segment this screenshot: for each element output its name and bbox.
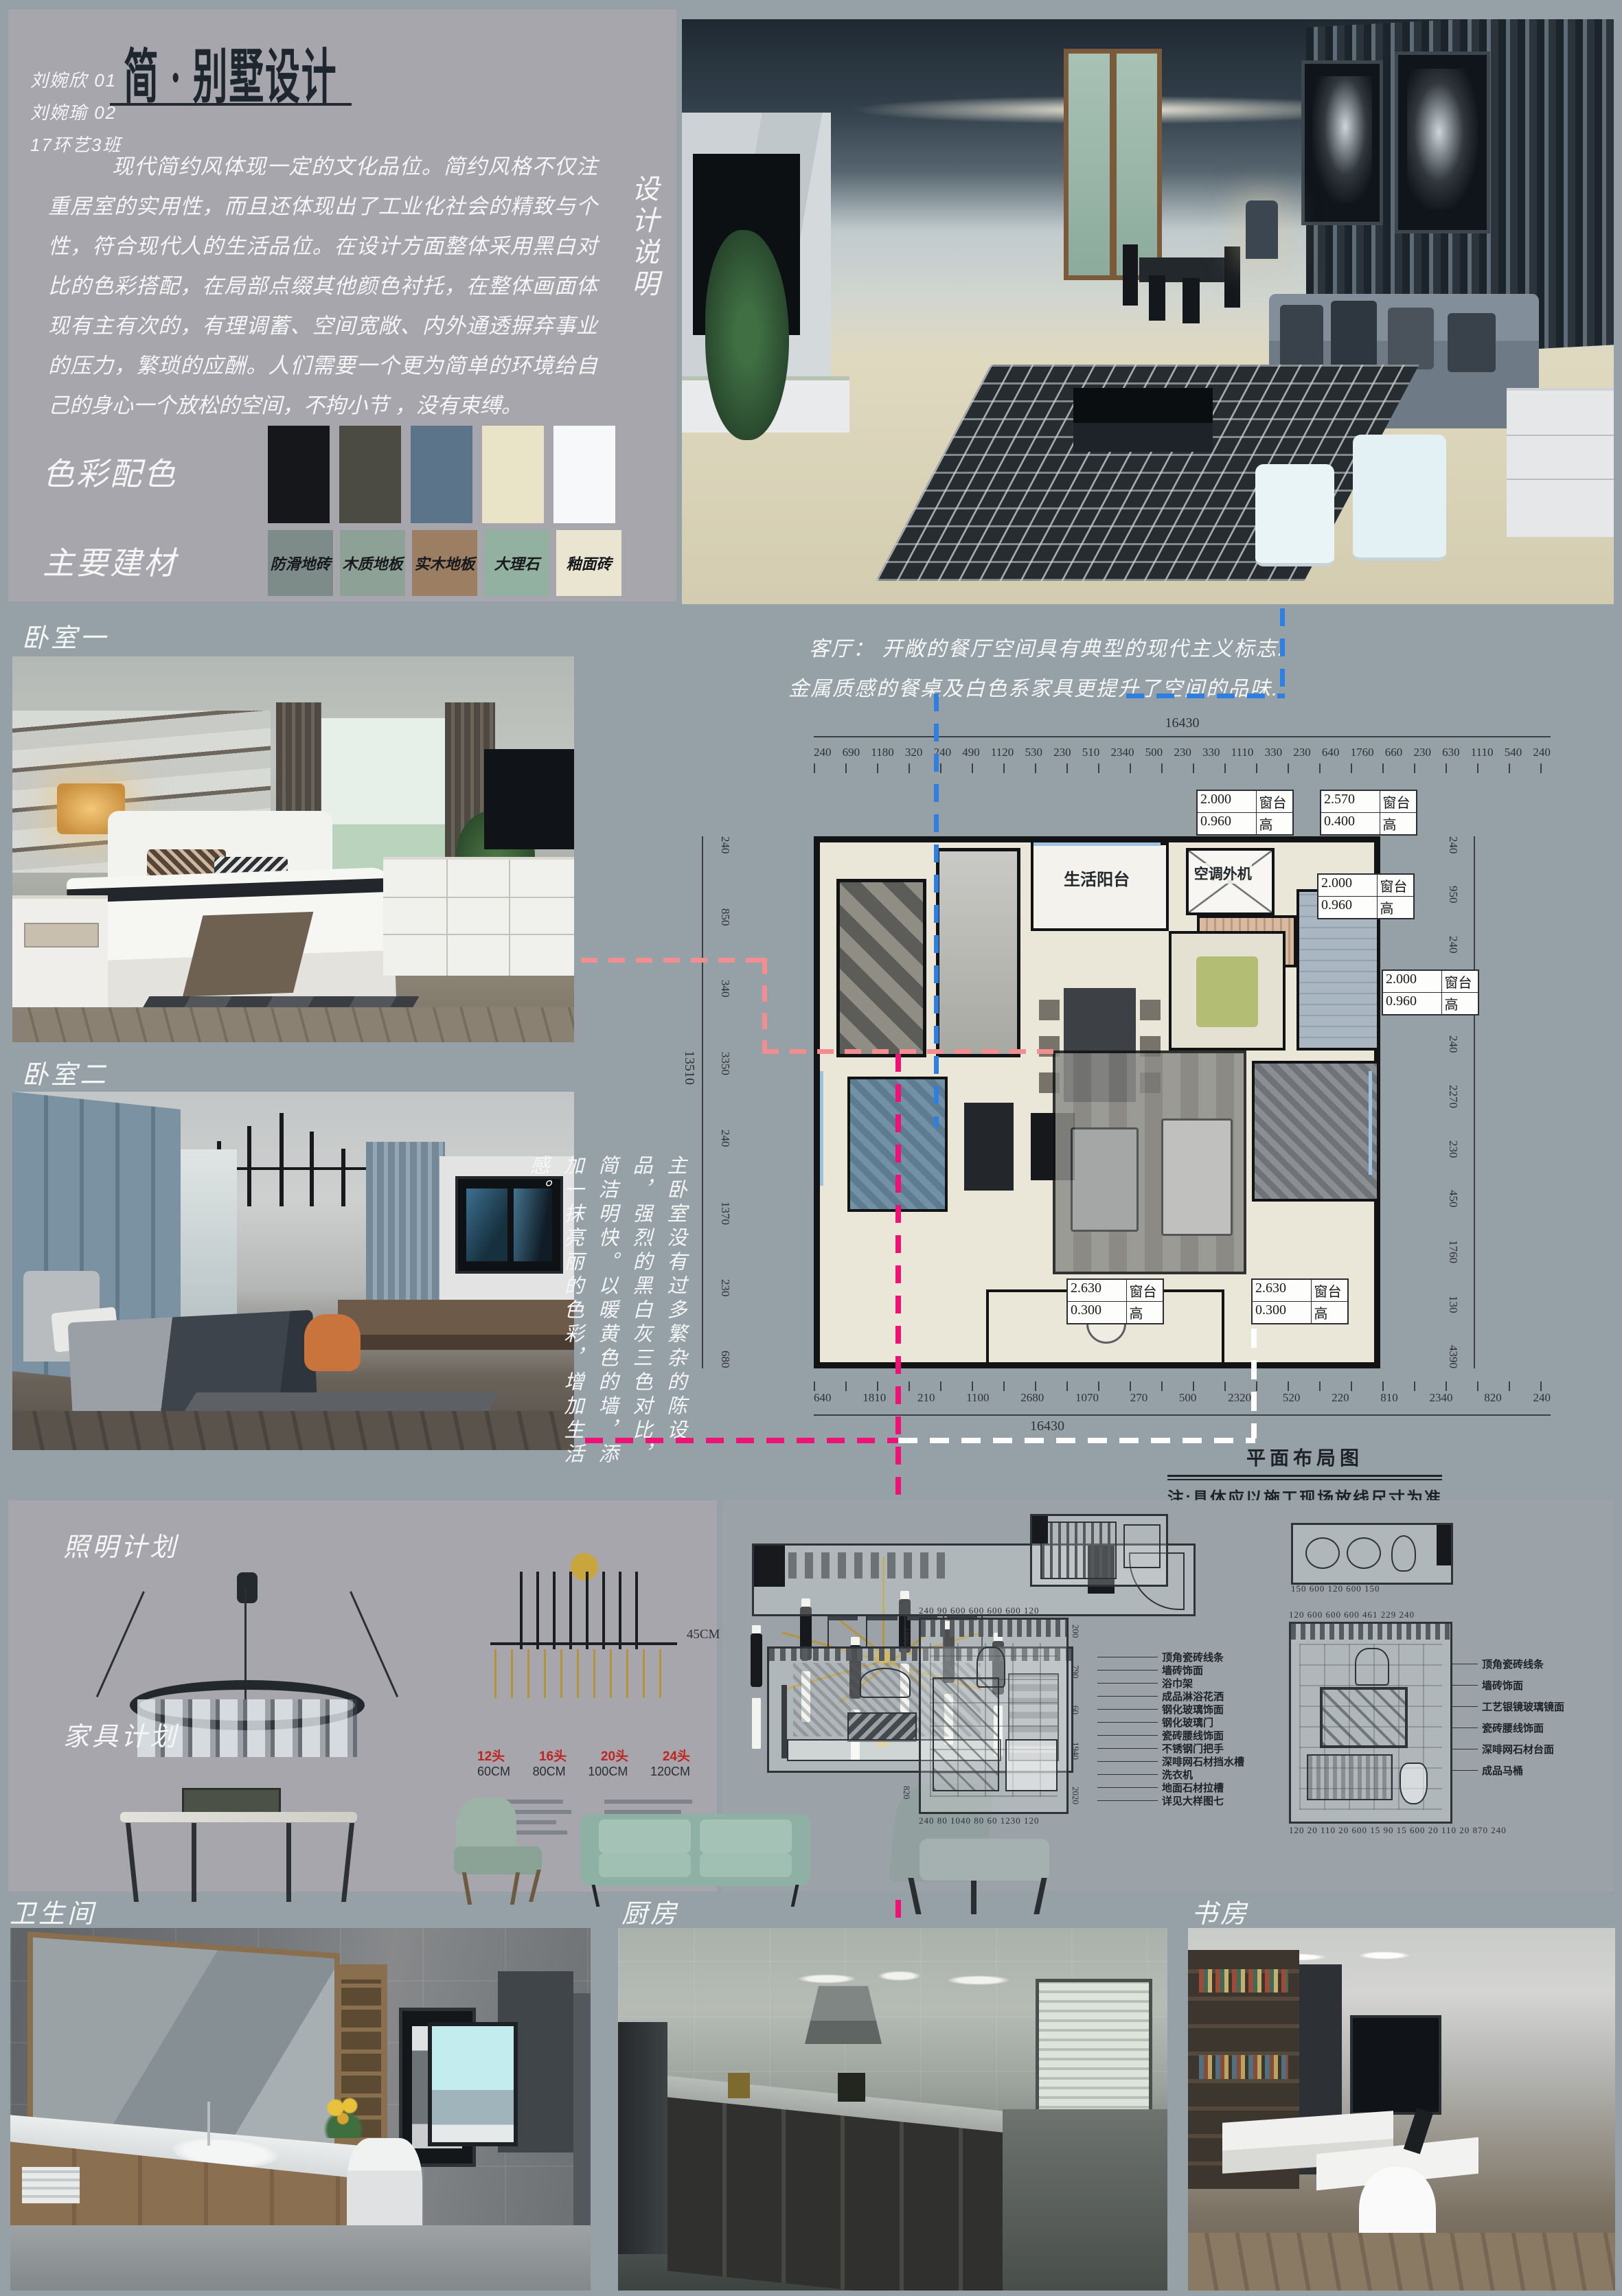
callout-text: 成品马桶 (1482, 1763, 1523, 1778)
furniture-plan-label: 家具计划 (63, 1715, 179, 1753)
material-swatch: 大理石 (484, 530, 549, 596)
life-balcony-label: 生活阳台 (1064, 866, 1130, 890)
bedroom1-label: 卧室一 (22, 617, 108, 654)
bedroom2-label: 卧室二 (22, 1053, 108, 1091)
sill-width: 2.000 (1318, 875, 1378, 897)
dim-value: 680 (718, 1351, 732, 1368)
callout-text: 顶角瓷砖线条 (1482, 1657, 1544, 1671)
drawer-line (1507, 435, 1614, 436)
dark-corner (573, 1993, 591, 2247)
tv-console (338, 1300, 574, 1350)
dining-chair (1224, 246, 1240, 308)
presentation-board: 刘婉欣 01刘婉瑜 0217环艺3班 简 · 别墅设计 现代简约风体现一定的文化… (0, 0, 1622, 2296)
plan-total-width-bottom: 16430 (814, 1419, 1281, 1434)
caption-rule (1167, 1475, 1442, 1477)
size-cm: 120CM (650, 1765, 690, 1779)
callout-text: 深啡网石材挡水槽 (1162, 1754, 1244, 1769)
elevation-b-right-dims: 2007906019402020 (1070, 1625, 1081, 1804)
city-window (428, 2022, 517, 2146)
title-underline (110, 103, 352, 106)
window-strip (1369, 1071, 1372, 1175)
dim-value: 450 (1446, 1190, 1460, 1208)
sill-label: 窗台 (1312, 1280, 1347, 1302)
towel-stack (22, 2167, 80, 2203)
window-callout: 2.000窗台 0.960高 (1196, 790, 1294, 836)
dim-value: 2020 (1070, 1787, 1081, 1804)
dim-value: 230 (1053, 746, 1071, 759)
material-name: 大理石 (494, 552, 539, 574)
dim-value: 2340 (1110, 746, 1134, 759)
leader-line (1450, 1706, 1478, 1707)
elevation-b-left-dims: 1890820 (901, 1627, 912, 1799)
table-lamp (1246, 200, 1278, 259)
callout-text: 不锈钢门把手 (1162, 1741, 1224, 1756)
head-count: 12头 (477, 1746, 505, 1765)
window-callout: 2.630窗台 0.300高 (1251, 1278, 1349, 1324)
small-bedroom (1169, 931, 1285, 1051)
dim-value: 1180 (871, 746, 893, 759)
callout-text: 工艺银镜玻璃镜面 (1482, 1699, 1564, 1714)
canopy (237, 1572, 258, 1603)
drawer-line (383, 934, 574, 935)
green-sofa (580, 1814, 810, 1907)
wall-block (754, 1546, 785, 1587)
chair-seat (919, 1839, 1049, 1881)
dim-value: 4390 (1446, 1345, 1460, 1368)
wood-floor (1188, 2233, 1615, 2291)
back-cushion (700, 1819, 792, 1853)
material-callout: 成品淋浴花洒 (1097, 1690, 1244, 1703)
tv-art (466, 1189, 507, 1262)
television (484, 749, 574, 849)
materials-label: 主要建材 (43, 538, 177, 584)
material-swatch: 木质地板 (340, 530, 405, 596)
chair-plan (1039, 1000, 1059, 1020)
plan-left-dims: 24085034033502401370230680 (711, 836, 739, 1368)
dim-value: 2320 (1228, 1391, 1251, 1405)
head-count: 20头 (601, 1746, 628, 1765)
white-ottoman (1255, 464, 1334, 567)
flower-vase (323, 2095, 364, 2138)
leader-line (1097, 1670, 1158, 1671)
plan-bottom-dims: 6401810210110026801070270500232052022081… (814, 1391, 1551, 1405)
door-mullion (1110, 54, 1117, 276)
connector-blue-h (1126, 693, 1285, 698)
dim-value: 2680 (1020, 1391, 1044, 1405)
dim-value: 230 (1174, 746, 1191, 759)
design-notes-vertical-label: 设计说明 (621, 174, 665, 301)
leader-line (1450, 1664, 1478, 1664)
height-label: 高 (1312, 1302, 1347, 1323)
connector-blue-v1 (1280, 608, 1285, 698)
dim-value: 240 (1446, 936, 1460, 954)
dim-value: 530 (1025, 746, 1042, 759)
caption-rule (1167, 1479, 1442, 1480)
sill-width: 2.630 (1253, 1280, 1312, 1302)
material-swatches: 防滑地砖 木质地板 实木地板 大理石 釉面砖 (268, 530, 621, 596)
callout-text: 钢化玻璃饰面 (1162, 1702, 1224, 1717)
dim-value: 240 (1533, 746, 1551, 759)
elevation-b-top-dims: 240 90 600 600 600 600 120 (919, 1605, 1040, 1616)
callout-text: 浴巾架 (1162, 1676, 1193, 1690)
elevation-c-labels: 顶角瓷砖线条 墙砖饰面 工艺银镜玻璃镜面 瓷砖腰线饰面 深啡网石材台面 成品马桶 (1450, 1653, 1564, 1781)
spec-line (604, 1800, 692, 1804)
material-callout: 不锈钢门把手 (1097, 1742, 1244, 1755)
material-swatch: 防滑地砖 (268, 530, 333, 596)
size-cm: 100CM (588, 1765, 628, 1779)
wood-floor (12, 1007, 574, 1042)
vanity-mirror (27, 1931, 340, 2152)
callout-cap (867, 1616, 898, 1620)
dim-chain-line (814, 736, 1551, 737)
gold-drops (494, 1649, 673, 1697)
leader-line (1450, 1685, 1478, 1686)
dim-value: 1940 (1070, 1742, 1081, 1760)
bedroom2-photo (12, 1092, 574, 1450)
wall-block (1032, 1516, 1048, 1543)
design-description: 现代简约风体现一定的文化品位。简约风格不仅注重居室的实用性，而且还体现出了工业化… (48, 147, 597, 426)
dim-value: 330 (1265, 746, 1283, 759)
leader-line (1097, 1696, 1158, 1697)
sill-width: 2.000 (1383, 971, 1442, 993)
color-swatch (482, 426, 544, 523)
leader-line (1097, 1722, 1158, 1723)
study-label: 书房 (1191, 1892, 1249, 1930)
window-callout: 2.630窗台 0.300高 (1066, 1278, 1164, 1324)
glass-door-symbol (933, 1677, 999, 1791)
sofa-plan (964, 1103, 1014, 1191)
connector-salmon-h2 (762, 1049, 1064, 1054)
dim-value: 230 (1293, 746, 1311, 759)
leader-line (1097, 1800, 1158, 1801)
bedroom1-photo (12, 656, 574, 1042)
leader-line (1097, 1761, 1158, 1762)
sofa-pillow (1448, 313, 1496, 372)
dim-value: 240 (814, 746, 832, 759)
elevation-c-bottom-dims: 120 20 110 20 600 15 90 15 600 20 110 20… (1289, 1825, 1507, 1836)
color-swatch (553, 426, 615, 523)
chandelier-symbol (1355, 1648, 1389, 1686)
faucet (207, 2102, 210, 2145)
material-callout: 墙砖饰面 (1097, 1664, 1244, 1677)
elevation-b-plan (1030, 1514, 1168, 1587)
callout-text: 墙砖饰面 (1482, 1678, 1523, 1692)
callout-text: 成品淋浴花洒 (1162, 1689, 1224, 1703)
window-callout: 2.000窗台 0.960高 (1382, 969, 1479, 1015)
board-title: 简 · 别墅设计 (124, 29, 337, 115)
rod-cluster (520, 1572, 648, 1649)
tile-floor (10, 2225, 591, 2291)
dim-value: 1120 (991, 746, 1014, 759)
kitchen-photo (618, 1928, 1167, 2291)
dining-chair (1123, 244, 1139, 306)
dim-value: 230 (1446, 1140, 1460, 1158)
sill-height: 0.960 (1318, 897, 1378, 918)
material-callout: 墙砖饰面 (1450, 1675, 1564, 1696)
book-row (1199, 2055, 1288, 2079)
dim-value: 1890 (901, 1627, 912, 1645)
sill-label: 窗台 (1380, 791, 1416, 813)
color-swatches (268, 426, 615, 523)
dim-value: 240 (718, 1129, 732, 1147)
connector-salmon-v (762, 958, 767, 1054)
dim-value: 1760 (1446, 1240, 1460, 1263)
material-name: 实木地板 (414, 552, 475, 574)
head-count: 24头 (663, 1746, 690, 1765)
material-name: 防滑地砖 (270, 552, 330, 574)
marble-top (120, 1812, 357, 1822)
callout-text: 钢化玻璃门 (1162, 1715, 1213, 1730)
sofa-pillow (1331, 301, 1377, 368)
connector-white-v (1251, 1329, 1257, 1438)
leader-line (1097, 1748, 1158, 1749)
dim-value: 340 (718, 980, 732, 998)
dim-value: 540 (1505, 746, 1522, 759)
dim-value: 640 (1322, 746, 1340, 759)
drawer (24, 923, 100, 947)
leader-line (1097, 1657, 1158, 1657)
leader-line (1450, 1749, 1478, 1749)
sofa-pillow (1388, 308, 1434, 369)
seat-cushion (599, 1853, 691, 1877)
plan-caption-block: 平面布局图 注:具体应以施工现场放线尺寸为准 (1161, 1443, 1449, 1508)
chair-plan (1140, 1000, 1160, 1020)
callout-text: 洗衣机 (1162, 1767, 1193, 1782)
washer-symbol (1005, 1739, 1058, 1792)
material-callout: 钢化玻璃饰面 (1097, 1703, 1244, 1716)
leader-line (1450, 1770, 1478, 1771)
dim-value: 510 (1082, 746, 1100, 759)
bathroom-photo (10, 1928, 591, 2291)
back-cushion (599, 1819, 691, 1853)
chandelier-rod (341, 1149, 345, 1206)
connector-blue-v2 (934, 693, 939, 1127)
sill-label: 窗台 (1442, 971, 1478, 993)
table-leg (286, 1823, 291, 1902)
dim-value: 1810 (863, 1391, 886, 1405)
dim-value: 2270 (1446, 1085, 1460, 1108)
table-leg (126, 1823, 139, 1902)
stick-chandelier: 45CM 12头16头20头24头 60CM80CM100CM120CM (477, 1553, 690, 1738)
dim-value: 790 (1070, 1665, 1081, 1679)
drawer-line (446, 860, 448, 976)
living-room-photo (682, 19, 1614, 604)
dim-value: 490 (962, 746, 980, 759)
foyer-checker-floor (836, 879, 926, 1057)
material-callout: 详见大样图七 (1097, 1794, 1244, 1807)
dim-value: 230 (718, 1279, 732, 1297)
book-row (1199, 1969, 1288, 1993)
dim-value: 3350 (718, 1052, 732, 1075)
size-cm: 60CM (477, 1765, 510, 1779)
head-count: 16头 (539, 1746, 567, 1765)
window-callout: 2.570窗台 0.400高 (1320, 790, 1417, 836)
drawer-line (383, 897, 574, 898)
chandelier-rod (247, 1126, 251, 1206)
dim-value: 2340 (1430, 1391, 1453, 1405)
leader-line (1097, 1774, 1158, 1775)
chair-leg (510, 1872, 520, 1905)
dim-value: 630 (1442, 746, 1460, 759)
material-callout: 地面石材拉槽 (1097, 1781, 1244, 1794)
material-callout: 顶角瓷砖线条 (1450, 1653, 1564, 1675)
dim-value: 810 (1380, 1391, 1398, 1405)
material-callout: 瓷砖腰线饰面 (1450, 1717, 1564, 1738)
dim-value: 850 (718, 908, 732, 926)
dim-value: 270 (1130, 1391, 1148, 1405)
sill-label: 窗台 (1127, 1280, 1163, 1302)
dim-value: 240 (1533, 1391, 1551, 1405)
plan-right-dims: 240950240350240227023045017601304390 (1439, 836, 1467, 1368)
dim-value: 320 (905, 746, 923, 759)
bed-runner (183, 911, 314, 996)
coffee-table (1073, 388, 1213, 452)
dim-value: 1110 (1471, 746, 1494, 759)
bed (66, 867, 396, 1018)
sill-label: 窗台 (1257, 791, 1292, 813)
height-label: 高 (1380, 813, 1416, 834)
sofa-leg (592, 1885, 600, 1907)
material-callout: 顶角瓷砖线条 (1097, 1651, 1244, 1664)
sill-width: 2.570 (1321, 791, 1380, 813)
seat-cushion (700, 1853, 792, 1877)
ac-unit-label: 空调外机 (1194, 863, 1252, 884)
drawer-line (509, 860, 510, 976)
window-strip (1033, 842, 1161, 846)
bathroom-label: 卫生间 (10, 1892, 96, 1930)
palette-label: 色彩配色 (43, 449, 177, 494)
table-leg (341, 1823, 354, 1902)
dining-chair (1149, 275, 1166, 321)
callout-text: 墙砖饰面 (1162, 1663, 1203, 1677)
dim-value: 820 (901, 1786, 912, 1800)
dim-value: 330 (1202, 746, 1220, 759)
callout-cap (827, 1616, 858, 1620)
ceiling-band (921, 1620, 1066, 1637)
material-name: 釉面砖 (566, 552, 611, 574)
sill-height: 0.960 (1383, 993, 1442, 1014)
plan-caption: 平面布局图 (1161, 1443, 1449, 1471)
dim-value: 230 (1413, 746, 1431, 759)
dining-chair (1183, 278, 1200, 323)
dim-value: 200 (1070, 1625, 1081, 1638)
callout-text: 瓷砖腰线饰面 (1482, 1721, 1544, 1735)
chair-leg (908, 1878, 921, 1914)
orange-chair (304, 1314, 361, 1372)
living-caption-line1: 客厅： 开敞的餐厅空间具有典型的现代主义标志. (809, 632, 1285, 662)
feather-art (1407, 69, 1478, 209)
cabinet-symbol (1123, 1524, 1161, 1568)
ceiling-band (1291, 1624, 1450, 1640)
plant-symbol (781, 1685, 787, 1758)
leader-line (1097, 1709, 1158, 1710)
sofa-leg (790, 1885, 799, 1907)
material-name: 木质地板 (342, 552, 402, 574)
window-strip (820, 1071, 823, 1186)
material-callout: 深啡网石材挡水槽 (1097, 1755, 1244, 1768)
dim-value: 240 (718, 836, 732, 854)
dim-value: 690 (843, 746, 860, 759)
chair-leg (462, 1872, 472, 1905)
mirror-symbol (1320, 1687, 1408, 1748)
kitchen-counter (936, 848, 1020, 1057)
chandelier-rod (279, 1113, 284, 1206)
cross-bar (490, 1642, 678, 1645)
connector-salmon-h1 (581, 958, 766, 963)
tube-light (751, 1633, 762, 1687)
green-armchair (445, 1798, 555, 1904)
callout-text: 瓷砖腰线饰面 (1162, 1728, 1224, 1743)
material-swatch: 釉面砖 (556, 530, 621, 596)
color-swatch (268, 426, 330, 523)
color-swatch (411, 426, 472, 523)
sill-width: 2.000 (1198, 791, 1257, 813)
wall-block (1437, 1525, 1451, 1565)
dim-value: 660 (1385, 746, 1403, 759)
material-callout: 洗衣机 (1097, 1768, 1244, 1781)
sill-label: 窗台 (1378, 875, 1413, 897)
vanity-cabinet-symbol (1307, 1754, 1393, 1800)
dim-chain-line (702, 836, 703, 1368)
height-dim: 45CM (687, 1627, 720, 1642)
stove-pot (838, 2073, 865, 2102)
dim-value: 1370 (718, 1202, 732, 1225)
window-callout: 2.000窗台 0.960高 (1317, 873, 1415, 919)
bed-trim (67, 878, 393, 904)
size-cm: 80CM (533, 1765, 566, 1779)
connector-magenta-h (585, 1438, 898, 1443)
author-line: 刘婉欣 01 (30, 65, 122, 97)
dim-chain-line (1474, 836, 1475, 1368)
chandelier-rod (310, 1132, 314, 1206)
dim-ticks (814, 1381, 1551, 1391)
material-callout: 瓷砖腰线饰面 (1097, 1729, 1244, 1742)
grill-symbol (1040, 1522, 1117, 1579)
bottle (728, 2073, 750, 2098)
leader-line (1097, 1683, 1158, 1684)
elevation-c-plan (1291, 1523, 1453, 1585)
color-swatch (339, 426, 401, 523)
study-photo (1188, 1928, 1615, 2291)
size-cm-row: 60CM80CM100CM120CM (477, 1765, 690, 1779)
size-heads-row: 12头16头20头24头 (477, 1746, 690, 1765)
island-counter (1003, 2109, 1167, 2291)
elevation-c-top-dims: 120 600 600 600 461 229 240 (1289, 1609, 1415, 1620)
dim-value: 130 (1446, 1296, 1460, 1313)
sofa-pillow (1280, 305, 1323, 369)
toilet-symbol (1391, 1535, 1416, 1572)
dim-value: 240 (1446, 1035, 1460, 1053)
plan-top-dims: 2406901180320240490112053023051023405002… (814, 746, 1551, 759)
sill-height: 0.300 (1253, 1302, 1312, 1323)
dim-value: 640 (814, 1391, 832, 1405)
dim-value: 500 (1179, 1391, 1197, 1405)
dim-value: 520 (1283, 1391, 1301, 1405)
material-swatch: 实木地板 (412, 530, 477, 596)
height-label: 高 (1442, 993, 1478, 1014)
dim-value: 220 (1332, 1391, 1349, 1405)
elevation-c-plan-dims: 150 600 120 600 150 (1291, 1583, 1380, 1594)
chair-seat (454, 1846, 542, 1874)
black-fridge (618, 2022, 667, 2254)
dim-value: 60 (1070, 1706, 1081, 1714)
material-callout: 成品马桶 (1450, 1760, 1564, 1781)
drawer-line (1507, 479, 1614, 480)
wall-tv (1350, 2015, 1441, 2115)
callout-text: 地面石材拉槽 (1162, 1780, 1224, 1795)
toilet-elevation-symbol (1400, 1763, 1428, 1805)
kitchen-label: 厨房 (621, 1892, 679, 1930)
